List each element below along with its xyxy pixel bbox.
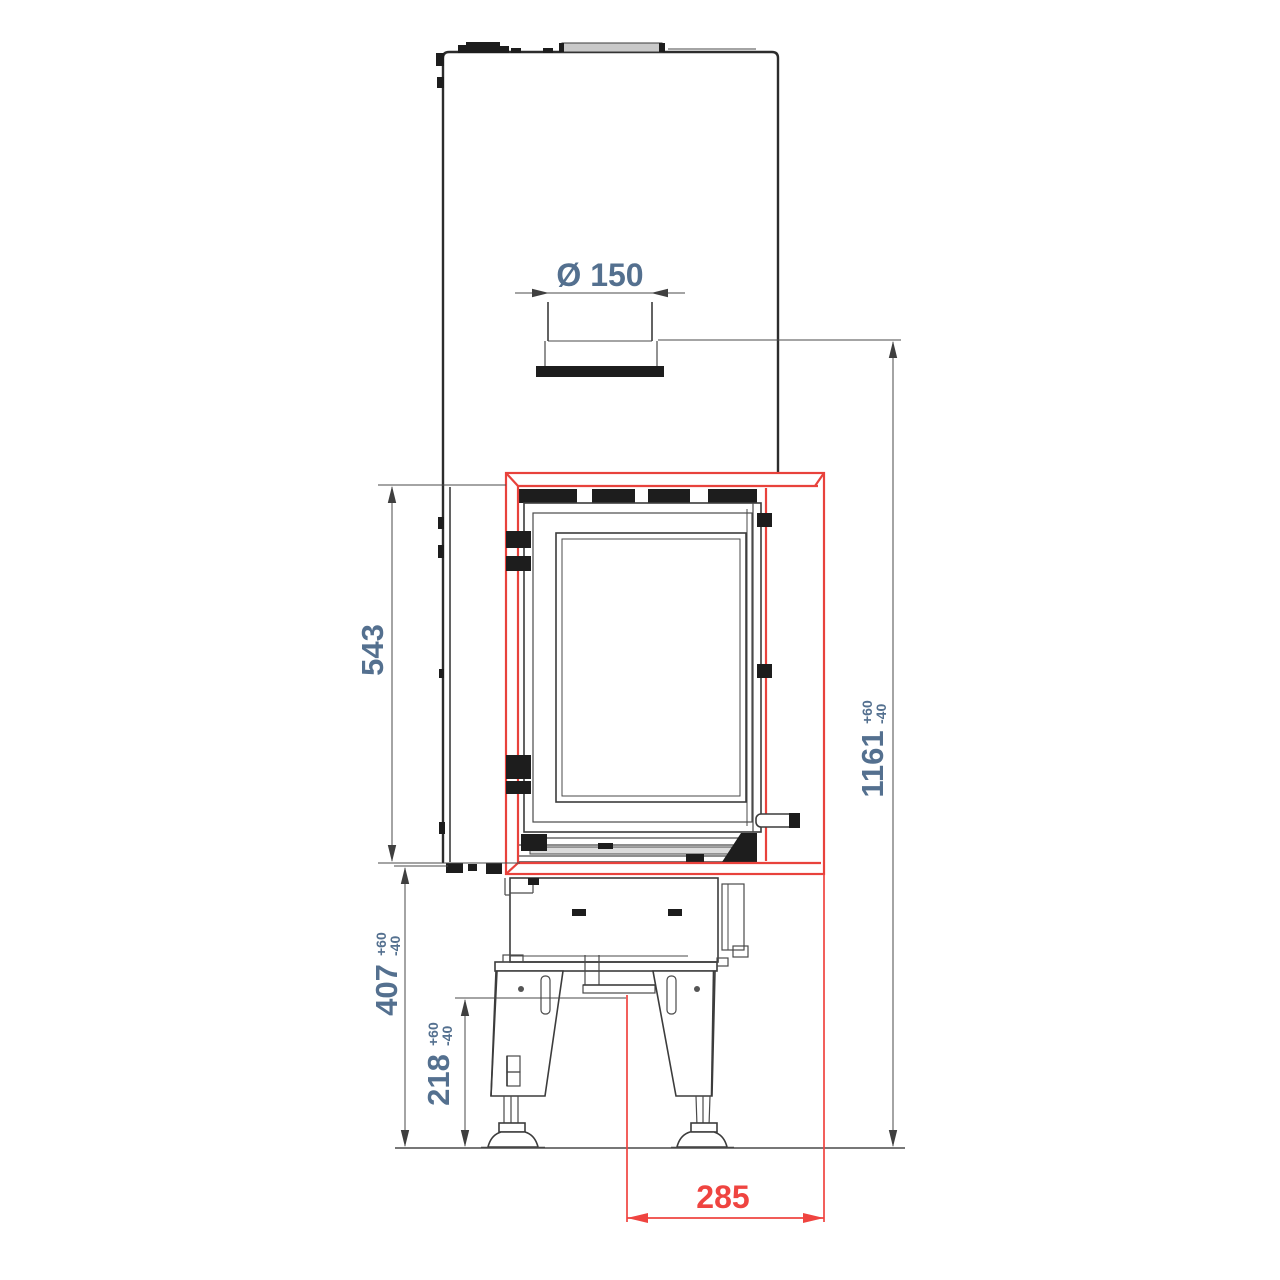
left-leg xyxy=(491,971,563,1096)
door-hinge xyxy=(506,755,531,779)
door-outer-frame xyxy=(524,503,761,832)
right-adjustable-foot xyxy=(671,1096,734,1148)
door-glass xyxy=(556,533,746,802)
dim-leg-height-value: 218 xyxy=(421,1054,456,1106)
door-handle xyxy=(756,814,794,827)
technical-drawing-page: Ø 150 543 1161 +60 -40 xyxy=(0,0,1280,1280)
door-hardware xyxy=(506,513,800,828)
screw-slot xyxy=(668,909,682,916)
dim-total-height-tol-minus: -40 xyxy=(873,704,889,724)
dim-firebox-height: 543 xyxy=(355,485,520,863)
latch-keeper xyxy=(757,664,772,678)
flue-collar xyxy=(536,302,664,377)
right-leg xyxy=(653,971,715,1096)
dim-flue-diameter-value: Ø 150 xyxy=(556,257,643,293)
fireplace-dimension-drawing: Ø 150 543 1161 +60 -40 xyxy=(0,0,1280,1280)
center-support-plate xyxy=(583,985,655,993)
pedestal-top-plate xyxy=(495,962,717,971)
dim-front-width-value: 285 xyxy=(696,1179,749,1215)
dimensions: Ø 150 543 1161 +60 -40 xyxy=(355,257,901,1223)
dim-base-height-tol-minus: -40 xyxy=(387,936,403,956)
firebox-door xyxy=(518,489,761,862)
top-connector-strip xyxy=(562,43,662,52)
dim-firebox-height-value: 543 xyxy=(355,624,390,676)
door-hinge xyxy=(506,556,531,571)
door-inner-frame xyxy=(533,513,752,822)
dim-leg-height-tol-minus: -40 xyxy=(439,1026,455,1046)
dim-base-height-value: 407 xyxy=(369,964,404,1016)
flue-collar-flange xyxy=(536,366,664,377)
left-adjustable-foot xyxy=(481,1096,545,1148)
door-hinge xyxy=(506,781,531,794)
dim-flue-diameter: Ø 150 xyxy=(515,257,685,297)
dim-front-width: 285 xyxy=(627,874,824,1223)
hood-panel xyxy=(436,42,778,874)
dim-total-height-value: 1161 xyxy=(855,730,890,797)
pedestal xyxy=(481,955,734,1148)
door-hinge xyxy=(506,531,531,548)
latch-keeper xyxy=(757,513,772,527)
base-unit xyxy=(505,878,748,962)
screw-slot xyxy=(572,909,586,916)
side-bracket xyxy=(722,884,744,950)
